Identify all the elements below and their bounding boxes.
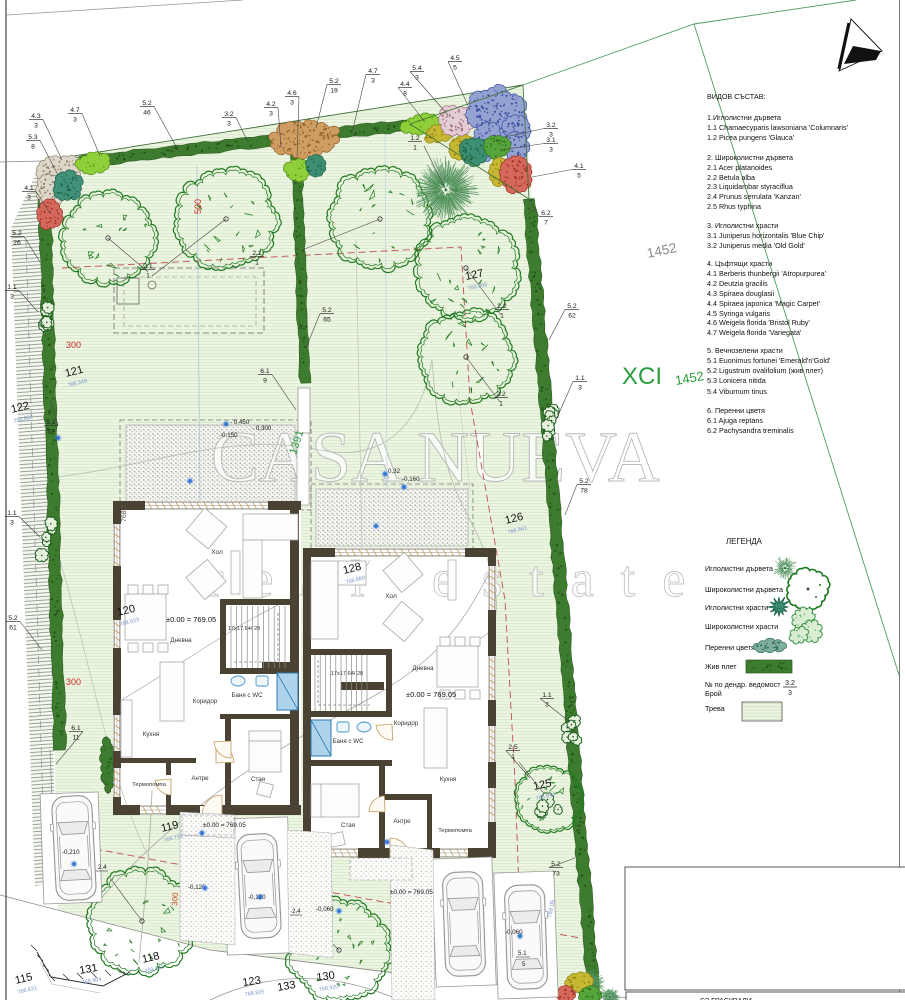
svg-text:3: 3	[34, 123, 38, 130]
svg-text:0,32: 0,32	[388, 468, 401, 475]
svg-text:3: 3	[578, 385, 582, 392]
svg-text:2. Широколистни дървета: 2. Широколистни дървета	[707, 153, 793, 162]
svg-text:5.2: 5.2	[12, 230, 22, 237]
svg-text:5.2 Ligustrum ovalifolium (жив: 5.2 Ligustrum ovalifolium (жив плет)	[707, 366, 823, 375]
svg-text:3.2: 3.2	[546, 122, 556, 129]
svg-text:3: 3	[227, 121, 231, 128]
svg-text:2.3 Liquidambar styraciflua: 2.3 Liquidambar styraciflua	[707, 182, 793, 191]
svg-text:5.2: 5.2	[46, 419, 56, 426]
svg-text:Широколистни дървета: Широколистни дървета	[705, 585, 783, 594]
svg-text:Жив плет: Жив плет	[705, 662, 737, 671]
svg-text:CASA NUEVA: CASA NUEVA	[211, 417, 660, 497]
svg-text:8: 8	[31, 144, 35, 151]
svg-text:4.1: 4.1	[574, 163, 584, 170]
svg-text:9: 9	[263, 378, 267, 385]
svg-text:4.2 Deutzia gracilis: 4.2 Deutzia gracilis	[707, 279, 768, 288]
svg-text:300: 300	[66, 340, 81, 350]
svg-text:±0.00 = 769.05: ±0.00 = 769.05	[166, 615, 216, 624]
svg-text:6.2: 6.2	[541, 210, 551, 217]
svg-text:Дневна: Дневна	[412, 665, 434, 672]
svg-text:- 0,300: - 0,300	[252, 425, 272, 432]
svg-text:Антре: Антре	[393, 818, 411, 825]
svg-text:Кухня: Кухня	[143, 731, 160, 738]
svg-text:Коридор: Коридор	[394, 720, 419, 727]
svg-text:4.1: 4.1	[24, 185, 34, 192]
svg-text:2.4: 2.4	[292, 908, 301, 915]
svg-text:1: 1	[413, 145, 417, 152]
svg-text:-0,120: -0,120	[248, 894, 266, 901]
svg-text:-0,210: -0,210	[62, 849, 80, 856]
svg-text:3: 3	[73, 117, 77, 124]
svg-text:1.2 Picea pungens 'Glauca': 1.2 Picea pungens 'Glauca'	[707, 133, 795, 142]
svg-text:ЛЕГЕНДА: ЛЕГЕНДА	[726, 537, 763, 546]
svg-text:1: 1	[146, 273, 150, 280]
svg-text:1.1: 1.1	[7, 510, 17, 517]
svg-text:4.4 Spiraea japonica 'Magic Ca: 4.4 Spiraea japonica 'Magic Carpet'	[707, 299, 821, 308]
svg-text:1.1 Chamaecyparis lawsoniana ': 1.1 Chamaecyparis lawsoniana 'Columnaris…	[707, 123, 849, 132]
svg-text:Стая: Стая	[251, 776, 265, 783]
svg-text:2.1 Acer platanoides: 2.1 Acer platanoides	[707, 163, 773, 172]
svg-text:4.7: 4.7	[368, 68, 378, 75]
svg-text:1: 1	[255, 260, 259, 267]
svg-text:5: 5	[577, 173, 581, 180]
svg-text:Баня с WC: Баня с WC	[231, 692, 263, 699]
svg-text:±0.00 = 769.05: ±0.00 = 769.05	[390, 889, 433, 896]
svg-text:5.2: 5.2	[329, 78, 339, 85]
svg-text:1.2: 1.2	[410, 135, 420, 142]
svg-text:3.2: 3.2	[785, 680, 795, 687]
svg-text:-0,150: -0,150	[220, 432, 238, 439]
svg-text:123: 123	[242, 975, 262, 989]
svg-text:3: 3	[10, 294, 14, 301]
svg-text:ВИДОВ СЪСТАВ:: ВИДОВ СЪСТАВ:	[707, 92, 766, 101]
svg-text:2.5 Rhus typhina: 2.5 Rhus typhina	[707, 202, 761, 211]
svg-text:2.5: 2.5	[508, 744, 518, 751]
svg-text:3.1 Juniperus horizontalis 'Bl: 3.1 Juniperus horizontalis 'Blue Chip'	[707, 231, 825, 240]
svg-text:- 0,450: - 0,450	[230, 419, 250, 426]
svg-text:5.2: 5.2	[551, 861, 561, 868]
svg-text:3.1: 3.1	[546, 137, 556, 144]
svg-text:2.4 Prunus serrulata 'Kanzan': 2.4 Prunus serrulata 'Kanzan'	[707, 192, 801, 201]
svg-text:±0.00 = 769.05: ±0.00 = 769.05	[406, 690, 456, 699]
svg-text:4.3 Spiraea douglasii: 4.3 Spiraea douglasii	[707, 289, 775, 298]
svg-text:768.5: 768.5	[121, 504, 128, 522]
svg-text:1.1: 1.1	[542, 692, 552, 699]
svg-text:5.2: 5.2	[579, 478, 589, 485]
svg-text:2.2 Betula alba: 2.2 Betula alba	[707, 173, 755, 182]
svg-text:5.1 Euonimus fortunei 'Emerald: 5.1 Euonimus fortunei 'Emerald'n'Gold'	[707, 356, 831, 365]
svg-text:2.4: 2.4	[98, 864, 107, 871]
svg-text:3: 3	[269, 111, 273, 118]
svg-text:3: 3	[10, 520, 14, 527]
svg-text:300: 300	[170, 892, 180, 907]
svg-text:3: 3	[290, 100, 294, 107]
svg-text:11: 11	[72, 735, 79, 742]
svg-text:№ по дендр. ведомост: № по дендр. ведомост	[705, 680, 781, 689]
svg-text:4.3: 4.3	[31, 113, 41, 120]
svg-text:7: 7	[544, 220, 548, 227]
svg-text:5.2: 5.2	[322, 307, 332, 314]
svg-text:300: 300	[66, 677, 81, 687]
svg-text:46: 46	[143, 110, 151, 117]
svg-text:4.7 Weigela florida 'Variegata: 4.7 Weigela florida 'Variegata'	[707, 328, 802, 337]
svg-text:Перенни цветя: Перенни цветя	[705, 643, 755, 652]
svg-text:52: 52	[47, 429, 55, 436]
svg-text:Коридор: Коридор	[193, 698, 218, 705]
svg-text:6.1: 6.1	[71, 725, 81, 732]
svg-text:XCI: XCI	[622, 363, 662, 390]
svg-text:2.1: 2.1	[143, 263, 153, 270]
svg-text:Дневна: Дневна	[170, 637, 192, 644]
svg-text:26: 26	[13, 240, 21, 247]
svg-text:4.5: 4.5	[450, 55, 460, 62]
svg-text:6.2 Pachysandra treminalis: 6.2 Pachysandra treminalis	[707, 426, 794, 435]
svg-text:4.6: 4.6	[287, 90, 297, 97]
svg-text:Баня с WC: Баня с WC	[332, 738, 364, 745]
svg-text:Стая: Стая	[341, 822, 355, 829]
svg-text:5. Вечнозелени храсти: 5. Вечнозелени храсти	[707, 346, 783, 355]
svg-text:73: 73	[552, 871, 560, 878]
svg-text:Кухня: Кухня	[440, 776, 457, 783]
svg-text:Широколистни храсти: Широколистни храсти	[705, 622, 778, 631]
svg-text:Трева: Трева	[705, 704, 725, 713]
svg-text:1.1: 1.1	[7, 284, 17, 291]
svg-text:Иглолистни дървета: Иглолистни дървета	[705, 564, 773, 573]
svg-text:5.2: 5.2	[142, 100, 152, 107]
svg-text:3.2 Juniperus media 'Old Gold': 3.2 Juniperus media 'Old Gold'	[707, 241, 805, 250]
svg-text:2.2: 2.2	[497, 303, 507, 310]
svg-text:17x17.64/ 28: 17x17.64/ 28	[228, 626, 260, 632]
svg-text:4.7: 4.7	[70, 107, 80, 114]
svg-text:65: 65	[323, 317, 331, 324]
svg-text:4.1 Berberis thunbergii 'Atrop: 4.1 Berberis thunbergii 'Atropurpurea'	[707, 269, 827, 278]
svg-text:5.3 Lonicera nitida: 5.3 Lonicera nitida	[707, 376, 766, 385]
svg-text:Антре: Антре	[191, 775, 209, 782]
svg-text:5.2: 5.2	[567, 303, 577, 310]
svg-text:130: 130	[316, 970, 336, 984]
svg-text:Иглолистни храсти: Иглолистни храсти	[705, 603, 768, 612]
svg-text:3: 3	[549, 147, 553, 154]
svg-text:Брой: Брой	[705, 689, 722, 698]
svg-text:±0.00 = 769.05: ±0.00 = 769.05	[203, 822, 246, 829]
svg-text:Термопомпа: Термопомпа	[132, 782, 166, 788]
svg-text:2.1: 2.1	[252, 250, 262, 257]
svg-text:500: 500	[193, 199, 203, 214]
svg-text:5.1: 5.1	[518, 950, 527, 957]
svg-text:5.3: 5.3	[28, 134, 38, 141]
svg-text:19: 19	[330, 88, 338, 95]
svg-text:-0,160: -0,160	[402, 476, 420, 483]
svg-text:3: 3	[371, 78, 375, 85]
svg-text:1.Иглолистни дървета: 1.Иглолистни дървета	[707, 113, 781, 122]
svg-text:6. Перенни цветя: 6. Перенни цветя	[707, 406, 765, 415]
svg-text:6.1: 6.1	[260, 368, 270, 375]
svg-text:3. Иглолистни храсти: 3. Иглолистни храсти	[707, 221, 778, 230]
svg-text:78: 78	[580, 488, 588, 495]
svg-text:4.5 Syringa vulgaris: 4.5 Syringa vulgaris	[707, 309, 771, 318]
svg-text:4.6 Weigela florida 'Bristol R: 4.6 Weigela florida 'Bristol Ruby'	[707, 318, 811, 327]
svg-text:62: 62	[568, 313, 576, 320]
svg-text:1.1: 1.1	[575, 375, 585, 382]
svg-text:Термопомпа: Термопомпа	[438, 828, 472, 834]
svg-text:2.2: 2.2	[496, 391, 506, 398]
svg-text:Хол: Хол	[385, 593, 397, 600]
svg-text:3: 3	[27, 195, 31, 202]
svg-text:3.2: 3.2	[224, 111, 234, 118]
svg-text:5: 5	[522, 961, 526, 968]
svg-text:-0,060: -0,060	[316, 906, 334, 913]
svg-text:3: 3	[788, 690, 792, 697]
svg-text:5.4: 5.4	[412, 65, 422, 72]
svg-text:4. Цъфтящи храсти: 4. Цъфтящи храсти	[707, 259, 772, 268]
svg-text:6.1 Ajuga reptans: 6.1 Ajuga reptans	[707, 416, 763, 425]
svg-text:4.4: 4.4	[400, 81, 410, 88]
svg-text:4.2: 4.2	[266, 101, 276, 108]
svg-text:5.4 Viburnum tinus: 5.4 Viburnum tinus	[707, 387, 767, 396]
svg-text:1: 1	[499, 401, 503, 408]
svg-text:17x17.64/ 28: 17x17.64/ 28	[331, 671, 363, 677]
svg-text:5.2: 5.2	[8, 615, 18, 622]
svg-text:61: 61	[9, 625, 17, 632]
svg-text:1: 1	[500, 313, 504, 320]
svg-text:5: 5	[453, 65, 457, 72]
svg-text:Хол: Хол	[211, 549, 223, 556]
